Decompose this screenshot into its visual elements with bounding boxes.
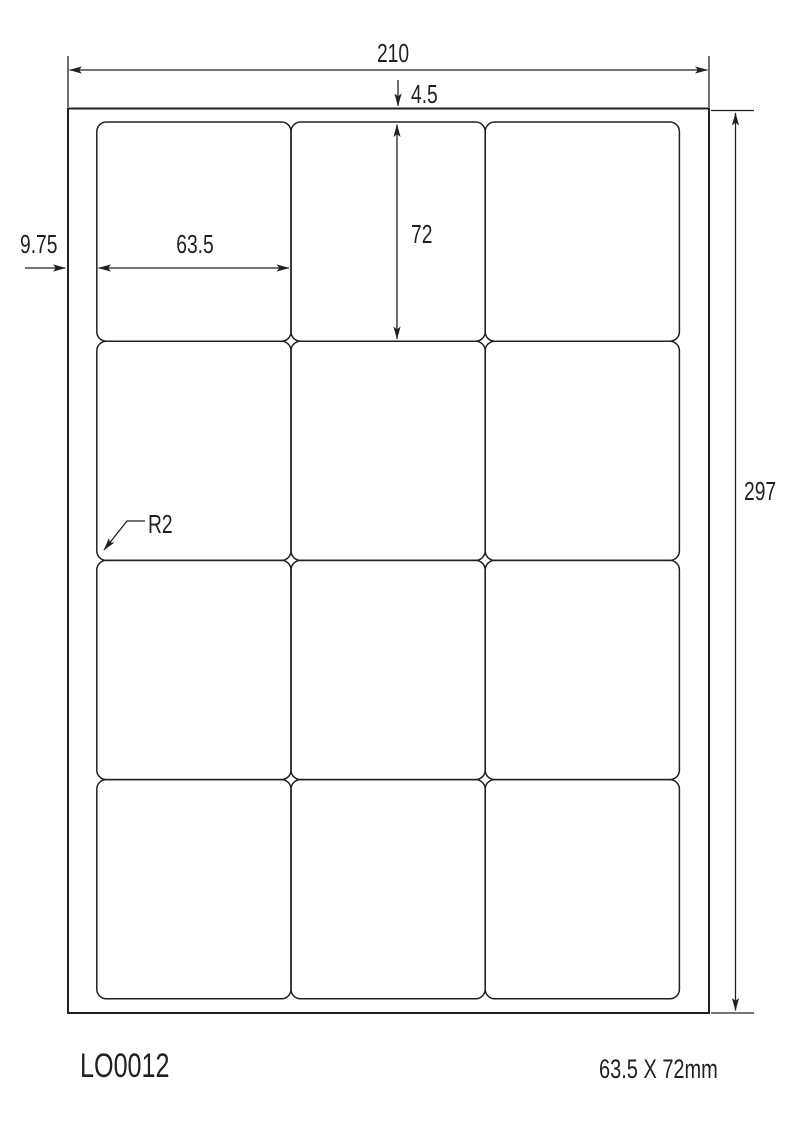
label-size-caption: 63.5 X 72mm xyxy=(599,1055,718,1083)
left-margin-value: 9.75 xyxy=(20,231,57,258)
product-code: LO0012 xyxy=(80,1049,170,1085)
label-cell xyxy=(485,780,679,999)
label-width-value: 63.5 xyxy=(165,231,224,258)
corner-radius-leader-arrow xyxy=(104,521,145,550)
label-cell xyxy=(485,341,679,560)
sheet-width-value: 210 xyxy=(363,40,422,67)
label-cell xyxy=(485,122,679,341)
label-cell xyxy=(485,560,679,779)
label-height-value: 72 xyxy=(411,221,432,248)
diagram-drawing xyxy=(0,0,796,1124)
label-cell xyxy=(291,780,485,999)
top-margin-value: 4.5 xyxy=(411,81,438,108)
label-cell xyxy=(291,341,485,560)
label-cell xyxy=(97,341,291,560)
sheet-height-value: 297 xyxy=(744,478,776,505)
label-cell xyxy=(291,560,485,779)
label-cell xyxy=(97,560,291,779)
label-cell xyxy=(97,780,291,999)
label-sheet-diagram: 210 4.5 9.75 63.5 72 R2 297 LO0012 63.5 … xyxy=(0,0,796,1124)
corner-radius-value: R2 xyxy=(148,511,173,538)
label-cell xyxy=(291,122,485,341)
